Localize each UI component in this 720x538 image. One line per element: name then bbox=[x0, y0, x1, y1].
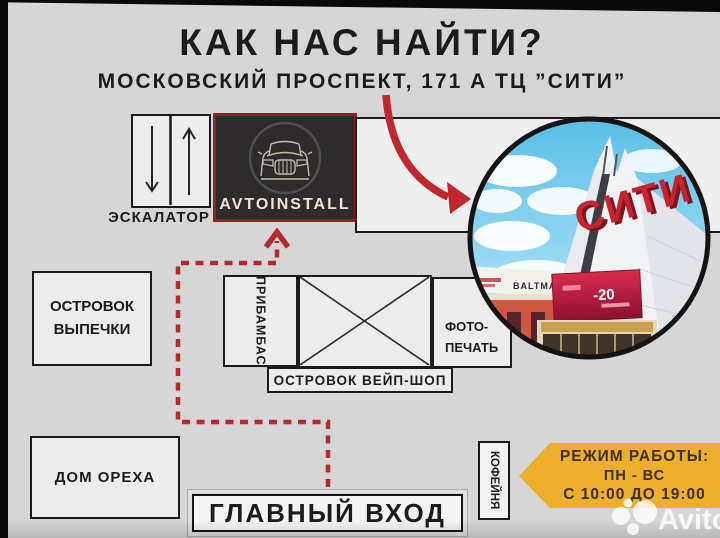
flyer-how-to-find-us: КАК НАС НАЙТИ? МОСКОВСКИЙ ПРОСПЕКТ, 171 … bbox=[0, 0, 720, 538]
crossed-stall-box bbox=[298, 275, 432, 368]
page-title: КАК НАС НАЙТИ? bbox=[110, 22, 614, 64]
avito-watermark: Avito bbox=[598, 490, 720, 536]
avito-watermark-text: Avito bbox=[658, 504, 720, 536]
store-avtoinstall-box: AVTOINSTALL bbox=[213, 113, 357, 222]
bakery-label-line1: ОСТРОВОК bbox=[50, 296, 134, 319]
hours-days: ПН - ВС bbox=[604, 468, 665, 484]
store-name-label: AVTOINSTALL bbox=[216, 196, 354, 214]
vape-island-box: ОСТРОВОК ВЕЙП-ШОП bbox=[267, 367, 453, 393]
address-subtitle: МОСКОВСКИЙ ПРОСПЕКТ, 171 А ТЦ ”СИТИ” bbox=[55, 70, 669, 94]
escalator-box bbox=[131, 114, 211, 208]
bakery-island-box: ОСТРОВОК ВЫПЕЧКИ bbox=[32, 271, 152, 366]
vape-island-label: ОСТРОВОК ВЕЙП-ШОП bbox=[274, 373, 447, 388]
avito-logo-icon bbox=[624, 499, 633, 508]
photo-edge-left bbox=[0, 0, 8, 538]
nut-house-label: ДОМ ОРЕХА bbox=[55, 469, 156, 486]
led-billboard: -20 bbox=[552, 270, 642, 323]
escalator-arrows-icon bbox=[133, 116, 208, 205]
svg-text:-20: -20 bbox=[593, 286, 616, 304]
escalator-label: ЭСКАЛАТОР bbox=[106, 209, 212, 226]
mall-photo: СИТИ СИТИ BALTMAXIMUS. -20 bbox=[467, 116, 711, 360]
x-cross-icon bbox=[300, 277, 429, 365]
bakery-label-line2: ВЫПЕЧКИ bbox=[50, 319, 134, 342]
photo-edge-top bbox=[0, 0, 720, 14]
coffee-shop-box: КОФЕЙНЯ bbox=[478, 441, 510, 520]
coffee-shop-label: КОФЕЙНЯ bbox=[488, 451, 500, 509]
pribambas-box: ПРИБАМБАС bbox=[223, 275, 298, 367]
route-arrowhead-icon bbox=[266, 232, 288, 247]
nut-house-box: ДОМ ОРЕХА bbox=[30, 436, 180, 519]
car-logo-icon bbox=[216, 118, 354, 196]
pribambas-label: ПРИБАМБАС bbox=[254, 276, 268, 366]
hours-title: РЕЖИМ РАБОТЫ: bbox=[560, 448, 709, 466]
